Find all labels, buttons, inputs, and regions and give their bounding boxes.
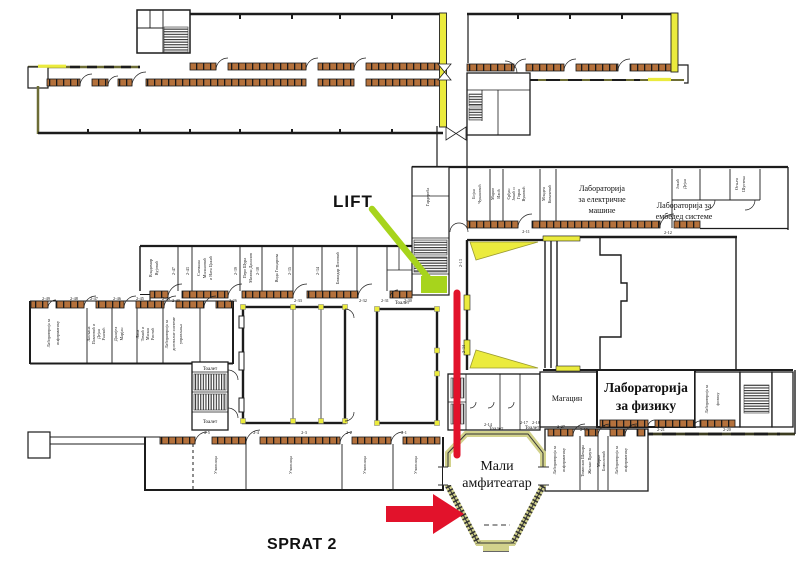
room-number: 2-32 [359, 298, 367, 303]
room-number: 2-4 [253, 430, 260, 435]
informatics-lab-south-label: информатику [561, 447, 566, 472]
office-label: Снежана [196, 260, 201, 276]
room-number: 2-33 [294, 298, 302, 303]
room-number: 2-31 [381, 298, 389, 303]
room-number: 2-47 [171, 266, 176, 275]
small-amphitheater-label: Мали [480, 459, 514, 474]
office-label: Марјан [119, 327, 124, 341]
office-label: Вуковић [521, 186, 526, 202]
classroom-label: Учионица [288, 456, 293, 474]
floor-title: SPRAT 2 [267, 536, 337, 553]
room-number: 2-2 [346, 430, 352, 435]
room-number: 2-1 [401, 430, 407, 435]
office-label: Владимир [148, 259, 153, 277]
electric-machines-lab-label: Лабораторија [579, 184, 625, 193]
room-number: 2-49 [42, 296, 50, 301]
room-number: 2-44 [162, 296, 171, 301]
office-label: Илић [496, 188, 501, 198]
room-number: 2-20 [723, 427, 731, 432]
toilet-label: Тоалет [203, 420, 218, 425]
office-label: Данијел [113, 327, 118, 341]
office-label: Ристић [150, 327, 155, 340]
office-label: Перо Шура [242, 258, 247, 279]
informatics-lab-south2-label: информатику [623, 447, 628, 472]
room-number: 2-30 [404, 298, 412, 303]
toilet-label: Тоалет [489, 427, 504, 432]
office-label: Вида Гонџарова [274, 254, 279, 283]
toilet-label: Тоалет [525, 426, 540, 431]
room-number: 2-25 [603, 424, 611, 429]
room-number: 2-18 [532, 420, 540, 425]
office-label: Божидар Поповић [335, 251, 340, 284]
office-label: Милош Данилов [248, 253, 253, 283]
room-number: 2-12 [664, 230, 672, 235]
office-label: Томислав Шекара [580, 445, 585, 477]
physics-lab-small-label: физику [715, 392, 720, 406]
room-number: 2-5 [204, 430, 210, 435]
informatics-lab-south2-label: Лабораторија за [614, 446, 619, 475]
office-label: Младен [541, 186, 546, 201]
office-label: Марио [490, 188, 495, 200]
classroom-label: Учионица [213, 456, 218, 474]
office-label: Чукановић [477, 183, 482, 203]
office-label: Жељко Прауза [587, 448, 592, 474]
room-number: 2-34 [461, 344, 466, 353]
electric-machines-lab-label: за електричне [578, 195, 626, 204]
floor-plan-drawing: Лабораторија за физику Лабораторија за ф… [0, 0, 800, 572]
physics-lab-small-label: Лабораторија за [704, 385, 709, 414]
lift-label: LIFT [333, 192, 373, 211]
physics-lab-label: Лабораторија [604, 380, 688, 395]
office-label: Бојан [471, 188, 476, 199]
electric-machines-lab-label: машине [589, 206, 616, 215]
office-label: Огњен [734, 177, 739, 190]
classroom-label: Учионица [413, 456, 418, 474]
office-label: Ранчић [101, 327, 106, 341]
room-number: 2-43 [185, 267, 190, 275]
room-number: 2-47 [90, 296, 99, 301]
digital-systems-lab-label: управљања [178, 324, 183, 344]
embedded-systems-lab-label: Лабораторија за [657, 201, 712, 210]
office-label: Дејан [682, 178, 687, 189]
room-number: 2-27 [557, 424, 566, 429]
room-number: 2-48 [70, 296, 78, 301]
room-number: 2-45 [136, 296, 144, 301]
office-label: Божиловић [601, 450, 606, 471]
cloakroom-label: Гардероба [425, 188, 430, 207]
floor-plan-sprat-2: Лабораторија за физику Лабораторија за ф… [0, 0, 800, 572]
room-number: 2-40 [172, 298, 180, 303]
office-label: Милановић [202, 257, 207, 278]
digital-systems-lab-label: Лабораторија за [164, 320, 169, 349]
office-label: Јокић [675, 178, 680, 189]
informatics-lab-label: информатику [55, 320, 60, 345]
office-label: Ковачевић [547, 184, 552, 203]
informatics-lab-south-label: Лабораторија за [552, 446, 557, 475]
room-number: 2-35 [287, 267, 292, 275]
room-number: 2-39 [233, 267, 238, 275]
room-number: 2-11 [522, 229, 530, 234]
physics-lab-label: за физику [616, 398, 676, 413]
room-number: 2-21 [657, 427, 665, 432]
room-number: 2-38 [255, 267, 260, 275]
digital-systems-lab-label: дигиталне системе [171, 317, 176, 351]
office-label: Вујовић [154, 260, 159, 275]
small-amphitheater-label: амфитеатар [462, 476, 532, 491]
toilet-label: Тоалет [203, 367, 218, 372]
room-number: 2-34 [315, 266, 320, 275]
storage-label: Магацин [552, 394, 583, 403]
informatics-lab-label: Лабораторија за [46, 319, 51, 348]
office-label: Шустека [741, 176, 746, 192]
room-number: 2-17 [520, 420, 529, 425]
classroom-label: Учионица [362, 456, 367, 474]
room-number: 2-14 [484, 422, 493, 427]
room-number: 2-46 [113, 296, 122, 301]
office-label: и Ната Цакић [208, 255, 213, 280]
room-number: 2-36 [229, 298, 238, 303]
room-number: 2-19 [580, 427, 588, 432]
room-number: 2-26 [629, 424, 638, 429]
room-number: 2-13 [458, 259, 463, 267]
embedded-systems-lab-label: ембедед системе [656, 212, 713, 221]
room-number: 2-3 [301, 430, 307, 435]
